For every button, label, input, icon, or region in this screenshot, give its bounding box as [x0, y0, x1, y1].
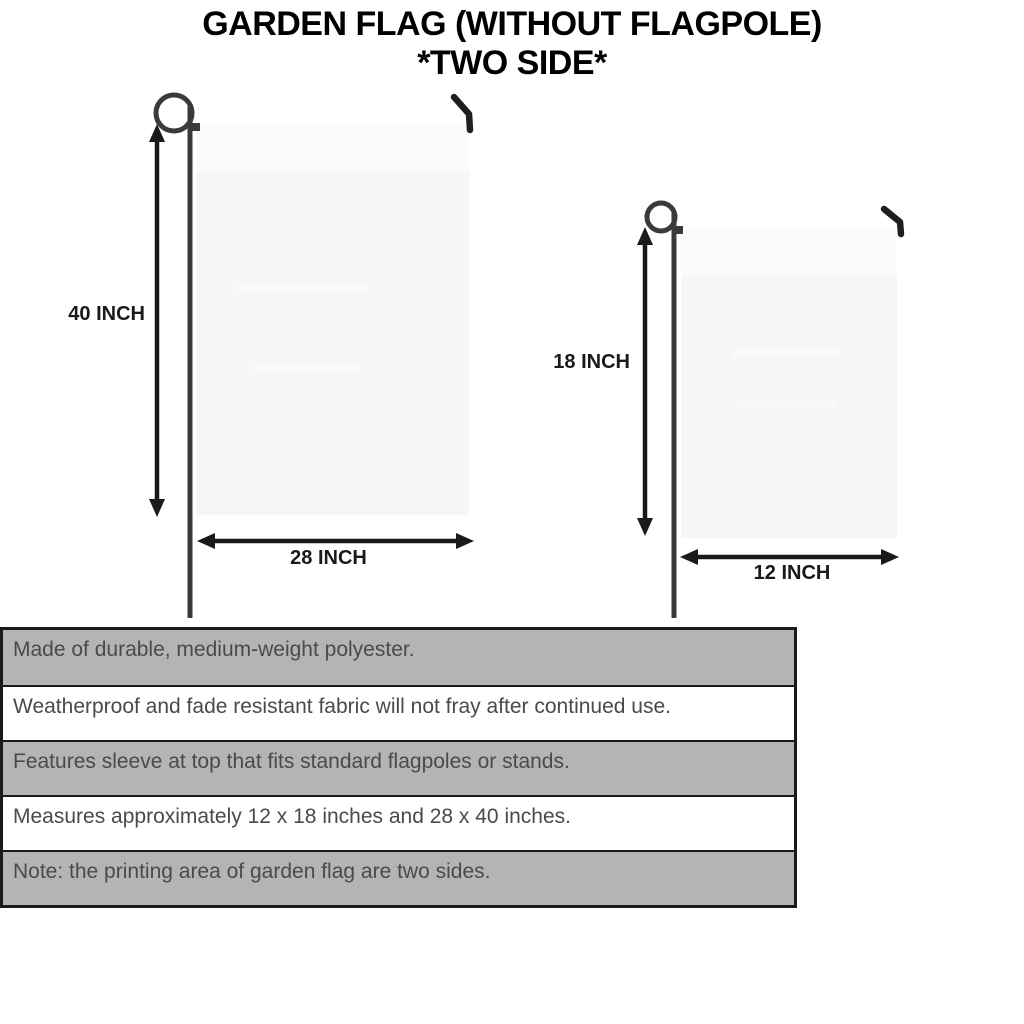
diagram-graphics — [0, 0, 1024, 630]
feature-row-text: Made of durable, medium-weight polyester… — [13, 638, 415, 661]
feature-row-1: Made of durable, medium-weight polyester… — [3, 630, 794, 685]
large-flag-pole-tab — [190, 123, 200, 131]
feature-row-4: Measures approximately 12 x 18 inches an… — [3, 795, 794, 850]
garden-flag-infographic: GARDEN FLAG (WITHOUT FLAGPOLE) *TWO SIDE… — [0, 0, 1024, 1024]
feature-row-3: Features sleeve at top that fits standar… — [3, 740, 794, 795]
feature-row-text: Measures approximately 12 x 18 inches an… — [13, 805, 571, 828]
feature-row-2: Weatherproof and fade resistant fabric w… — [3, 685, 794, 740]
large-flag-pole-loop-icon — [156, 95, 192, 131]
small-flag-height-arrow — [637, 227, 653, 536]
large-flag-width-label: 28 INCH — [246, 547, 411, 570]
large-flag-height-arrow — [149, 124, 165, 517]
small-flag-pole-loop-icon — [647, 203, 675, 231]
feature-row-text: Features sleeve at top that fits standar… — [13, 750, 570, 773]
feature-row-5: Note: the printing area of garden flag a… — [3, 850, 794, 905]
features-table: Made of durable, medium-weight polyester… — [0, 627, 797, 908]
feature-row-text: Note: the printing area of garden flag a… — [13, 860, 490, 883]
small-flag-pole-tab — [674, 226, 683, 234]
large-flag-hanger-hook-icon — [454, 97, 470, 130]
large-flag-height-label: 40 INCH — [68, 303, 145, 326]
size-diagram: 40 INCH 28 INCH 18 INCH 12 INCH — [0, 0, 1024, 630]
small-flag-width-label: 12 INCH — [712, 562, 872, 585]
small-flag-hanger-hook-icon — [884, 209, 901, 234]
small-flag-height-label: 18 INCH — [553, 351, 630, 374]
feature-row-text: Weatherproof and fade resistant fabric w… — [13, 695, 671, 718]
